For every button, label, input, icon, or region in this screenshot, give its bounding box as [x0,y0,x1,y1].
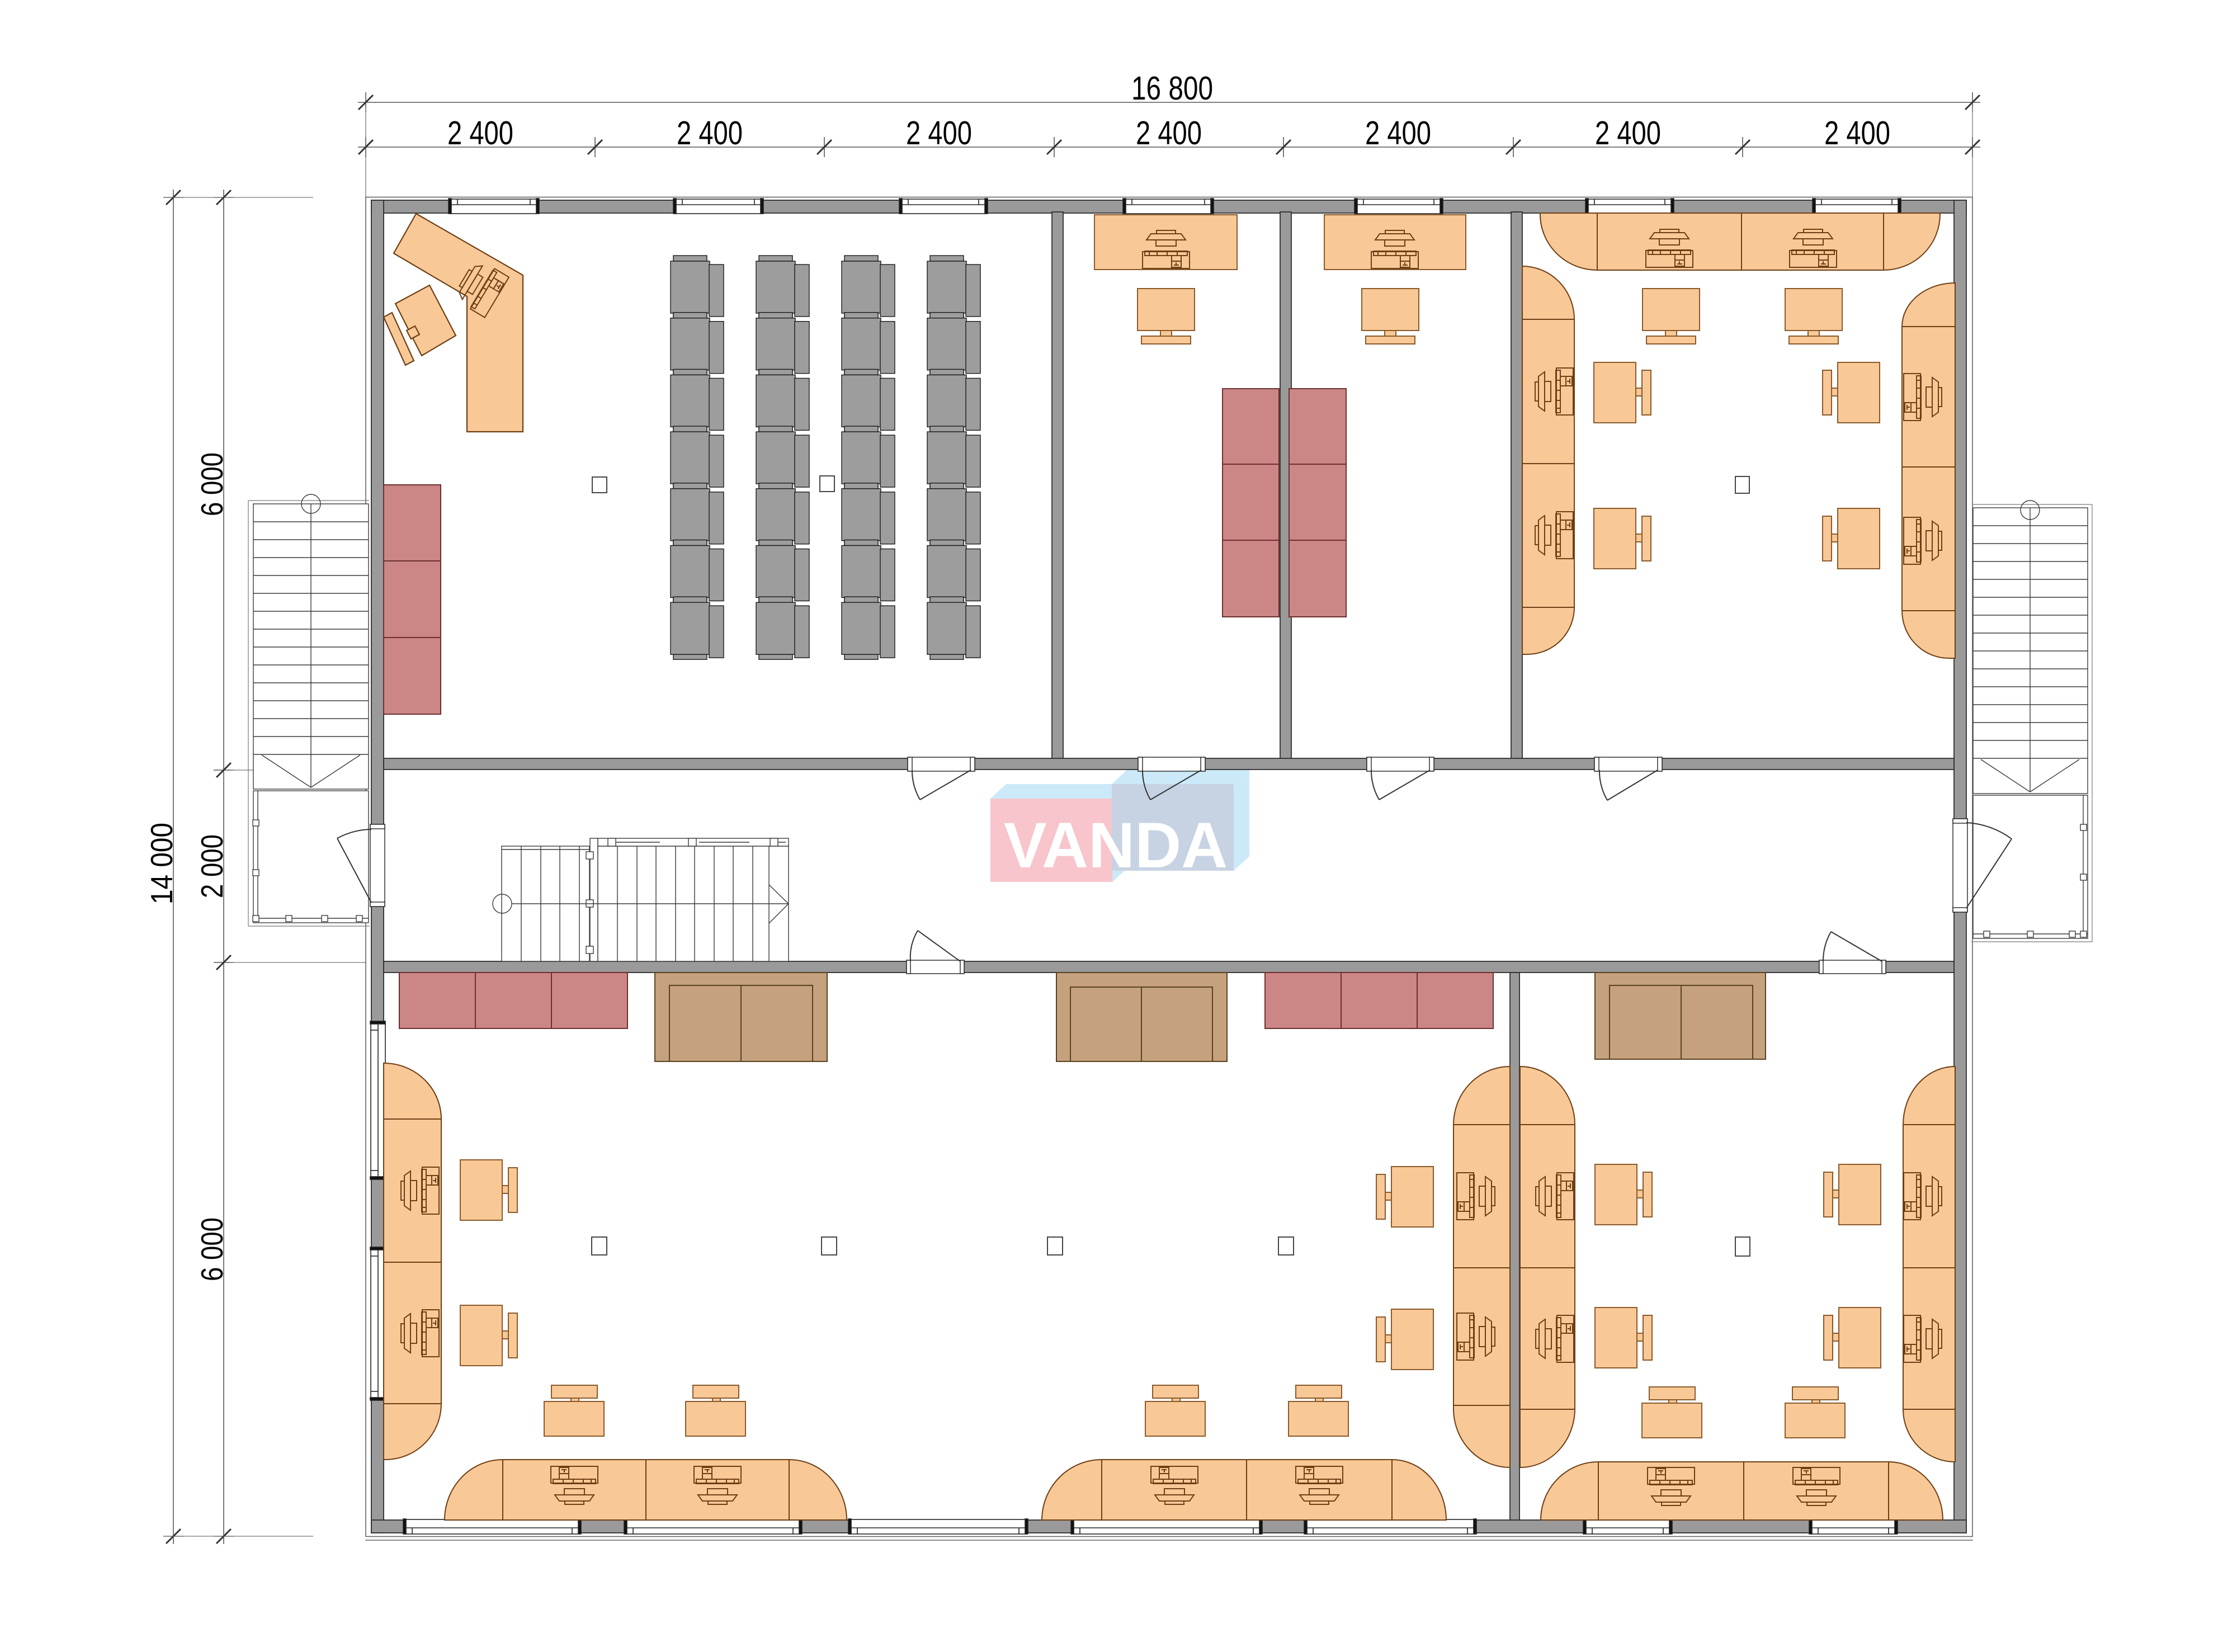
svg-text:2 400: 2 400 [1136,115,1202,152]
svg-text:16 800: 16 800 [1131,70,1213,107]
svg-text:2 400: 2 400 [1365,115,1431,152]
svg-text:2 400: 2 400 [677,115,743,152]
svg-text:2 400: 2 400 [447,115,513,152]
svg-text:14 000: 14 000 [144,823,179,904]
svg-text:6 000: 6 000 [195,1217,229,1281]
svg-text:2 400: 2 400 [906,115,972,152]
svg-text:2 400: 2 400 [1595,115,1661,152]
svg-text:2 000: 2 000 [195,834,229,898]
svg-text:VANDA: VANDA [1004,810,1228,881]
svg-text:2 400: 2 400 [1824,115,1890,152]
svg-text:6 000: 6 000 [195,452,229,516]
